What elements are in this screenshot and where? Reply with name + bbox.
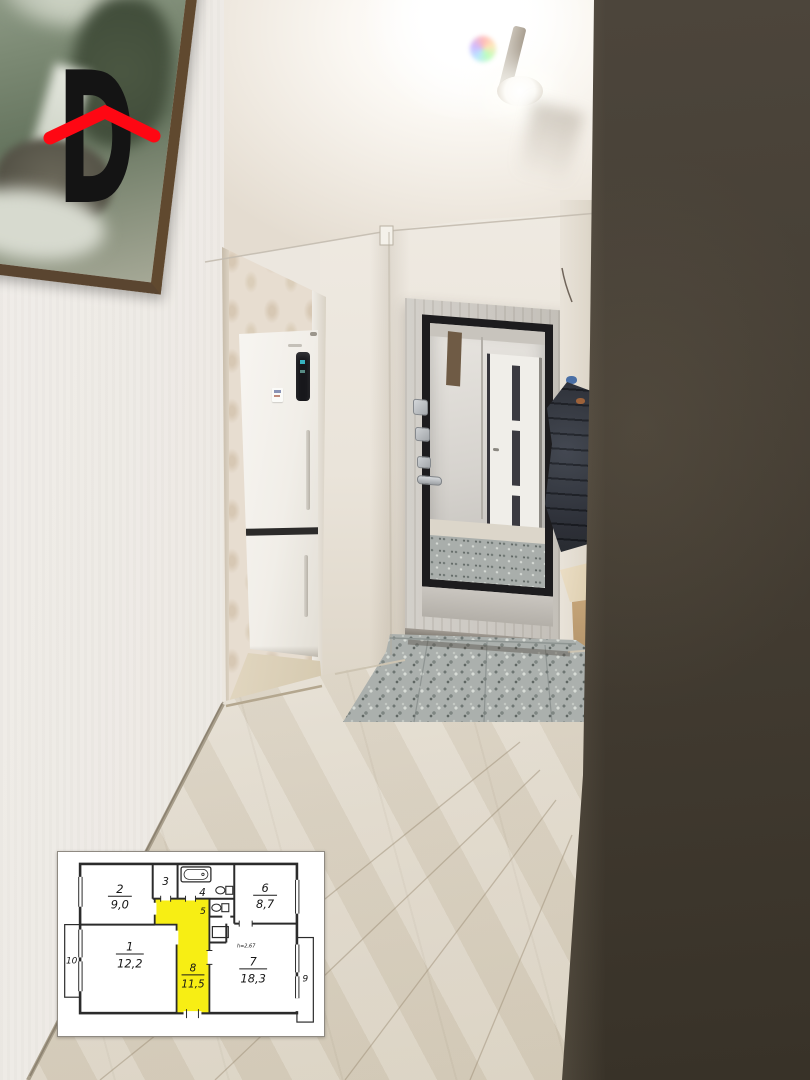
plan-room7-number: 7 (250, 954, 258, 968)
kitchen-doorway (222, 247, 330, 709)
fridge-handle (306, 430, 310, 510)
mirror-door-stripe (512, 365, 520, 421)
mirror-reflection-frame (446, 331, 462, 386)
plan-room2-number: 2 (116, 882, 123, 896)
mirror-reflection-wall-edge (481, 337, 483, 519)
plan-room2-area: 9,0 (111, 898, 129, 912)
plan-toilet (212, 904, 221, 911)
refrigerator (238, 330, 320, 658)
fridge-hinge (310, 332, 317, 336)
plan-room1-area: 12,2 (117, 956, 142, 970)
lens-flare-rainbow (470, 36, 496, 62)
fridge-freezer-divider (246, 527, 320, 536)
plan-room4-number: 4 (199, 887, 206, 899)
door-lock-upper (413, 399, 428, 416)
door-handle (417, 475, 442, 486)
plan-ceiling-height: h=2,67 (237, 943, 256, 949)
plan-room6-area: 8,7 (256, 897, 275, 911)
plan-room8-area: 11,5 (181, 978, 205, 990)
plan-room6-number: 6 (261, 881, 268, 895)
floorplan-overlay: 2 9,0 3 4 5 6 8,7 1 12,2 8 11,5 7 18,3 h… (57, 851, 325, 1037)
fridge-brand-mark (288, 344, 302, 347)
plan-room1-number: 1 (126, 939, 133, 953)
plan-room5-number: 5 (200, 907, 206, 917)
plan-sink (216, 887, 225, 894)
door-lock-middle (415, 427, 430, 442)
mirror-reflection-tile (430, 535, 545, 588)
plan-room8-number: 8 (190, 962, 197, 974)
logo-roof-icon (38, 100, 168, 148)
floorplan-drawing: 2 9,0 3 4 5 6 8,7 1 12,2 8 11,5 7 18,3 h… (58, 852, 324, 1036)
fridge-display (296, 352, 310, 401)
door-mirror (430, 323, 545, 588)
freezer-handle (304, 555, 308, 617)
plan-balcony10-number: 10 (66, 956, 78, 966)
jacket-collar (576, 398, 585, 404)
entrance-door (405, 298, 568, 649)
watermark-logo: D (30, 40, 175, 205)
plan-balcony9-number: 9 (303, 974, 309, 984)
fridge-sticker (272, 388, 283, 402)
door-lock-lower (417, 456, 431, 469)
mirror-door-stripe (512, 430, 520, 486)
apartment-hallway-photo: D (0, 0, 810, 1080)
mirror-door-handle (493, 448, 499, 451)
plan-room7-area: 18,3 (240, 971, 265, 985)
plan-room3-number: 3 (162, 876, 169, 888)
wall-corner-shadow (370, 225, 410, 675)
